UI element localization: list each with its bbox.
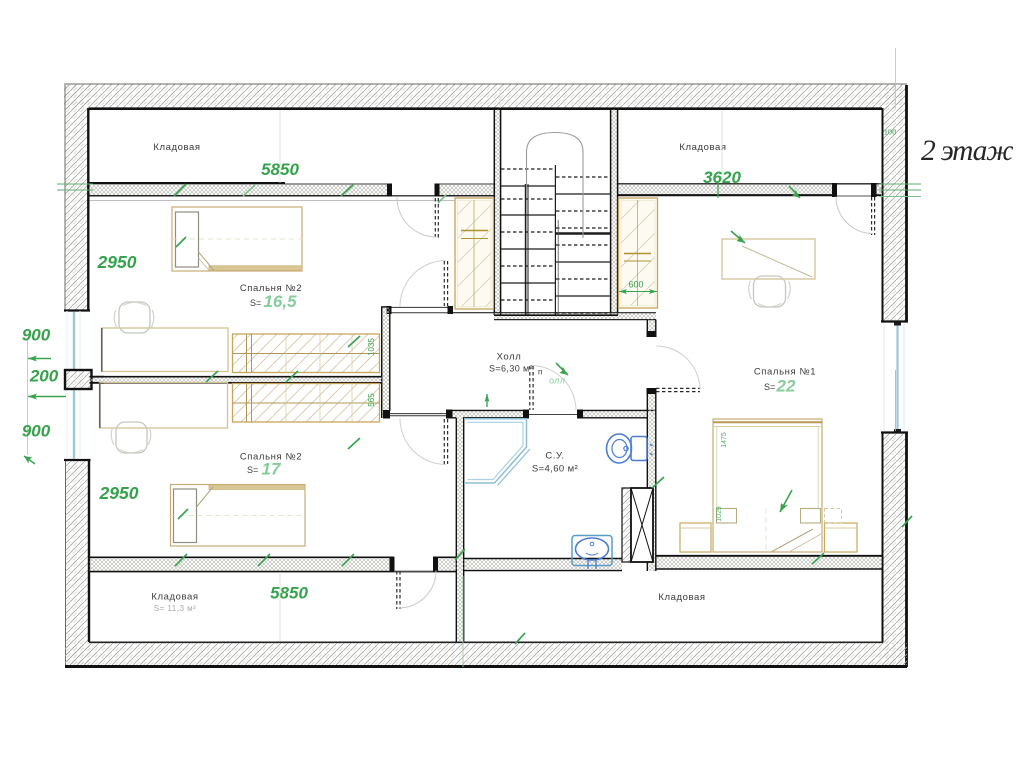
svg-text:Кладовая: Кладовая [679,142,726,153]
svg-text:600: 600 [628,280,643,290]
svg-text:1029: 1029 [716,506,723,522]
svg-text:олл: олл [549,376,565,386]
svg-text:S=: S= [250,298,261,308]
svg-text:S=: S= [764,382,775,392]
svg-text:Кладовая: Кладовая [151,592,198,603]
svg-text:100: 100 [884,128,897,137]
svg-text:Холл: Холл [497,352,522,363]
svg-text:С.У.: С.У. [545,451,564,462]
svg-text:2 этаж: 2 этаж [921,135,1013,167]
svg-text:Кладовая: Кладовая [153,142,200,153]
svg-text:22: 22 [776,377,796,396]
svg-text:S=: S= [247,465,258,475]
svg-text:1475: 1475 [721,432,728,448]
svg-text:п: п [538,368,542,377]
svg-text:1035: 1035 [367,338,376,356]
svg-text:2950: 2950 [99,483,139,503]
svg-text:16,5: 16,5 [263,292,297,311]
svg-text:S= 11,3 м²: S= 11,3 м² [154,604,197,613]
svg-text:565: 565 [367,393,376,407]
svg-text:2950: 2950 [97,252,137,272]
svg-text:900: 900 [22,326,51,345]
svg-text:200: 200 [29,367,59,386]
svg-text:17: 17 [262,460,282,479]
svg-text:S=4,60 м²: S=4,60 м² [532,464,578,475]
svg-text:900: 900 [22,422,51,441]
svg-text:Кладовая: Кладовая [658,592,705,603]
svg-text:S=6,30 м²: S=6,30 м² [489,364,533,374]
svg-text:5850: 5850 [270,584,308,603]
